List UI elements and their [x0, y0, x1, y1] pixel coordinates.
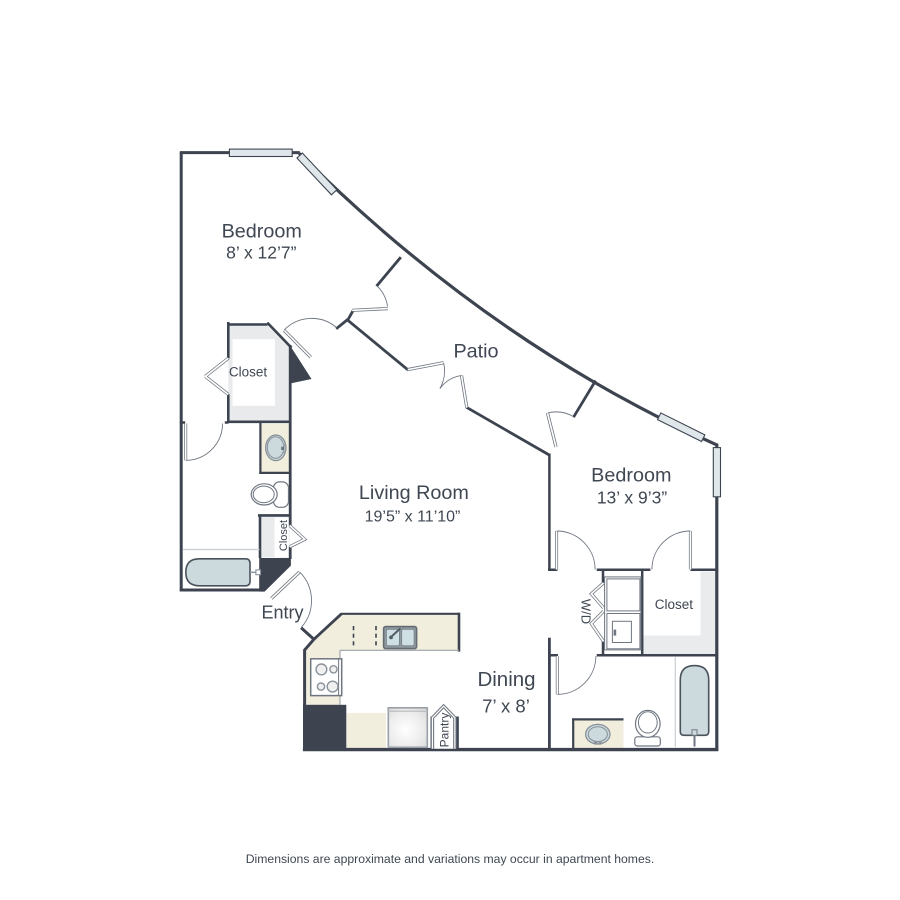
- svg-text:7’ x 8’: 7’ x 8’: [482, 696, 530, 717]
- svg-text:8’ x 12’7”: 8’ x 12’7”: [226, 243, 297, 263]
- svg-text:Closet: Closet: [229, 365, 268, 380]
- svg-text:Pantry: Pantry: [437, 713, 451, 748]
- svg-text:Patio: Patio: [453, 341, 498, 363]
- svg-text:W/D: W/D: [579, 599, 594, 624]
- svg-text:Dining: Dining: [477, 668, 535, 691]
- svg-text:Dimensions are approximate and: Dimensions are approximate and variation…: [246, 852, 654, 866]
- svg-text:Bedroom: Bedroom: [591, 465, 671, 487]
- svg-text:19’5” x 11’10”: 19’5” x 11’10”: [365, 509, 461, 526]
- svg-text:13’ x 9’3”: 13’ x 9’3”: [597, 488, 668, 508]
- svg-text:Entry: Entry: [261, 603, 303, 623]
- svg-text:Bedroom: Bedroom: [222, 221, 302, 243]
- svg-text:Living Room: Living Room: [359, 482, 469, 504]
- svg-text:Closet: Closet: [655, 597, 694, 612]
- svg-text:Closet: Closet: [278, 520, 290, 551]
